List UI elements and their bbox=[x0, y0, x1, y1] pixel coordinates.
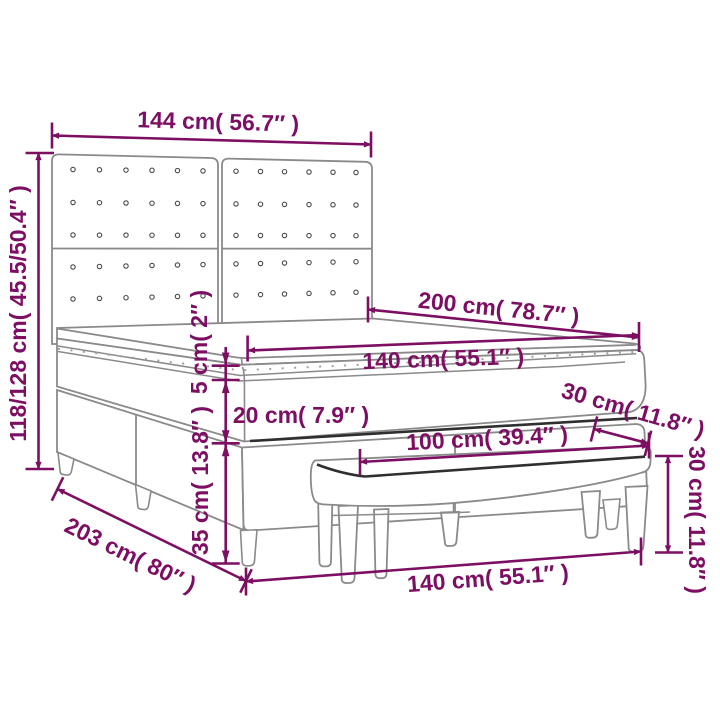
svg-text:140 cm( 55.1″ ): 140 cm( 55.1″ ) bbox=[362, 343, 525, 374]
svg-text:20 cm( 7.9″ ): 20 cm( 7.9″ ) bbox=[233, 402, 369, 428]
svg-text:30 cm( 11.8″ ): 30 cm( 11.8″ ) bbox=[684, 446, 710, 594]
svg-text:140 cm( 55.1″ ): 140 cm( 55.1″ ) bbox=[406, 559, 569, 597]
svg-text:118/128 cm( 45.5/50.4″ ): 118/128 cm( 45.5/50.4″ ) bbox=[5, 185, 31, 442]
svg-text:5 cm( 2″ ): 5 cm( 2″ ) bbox=[186, 290, 212, 394]
svg-text:35 cm( 13.8″ ): 35 cm( 13.8″ ) bbox=[187, 406, 213, 555]
svg-text:144 cm( 56.7″ ): 144 cm( 56.7″ ) bbox=[137, 106, 300, 137]
